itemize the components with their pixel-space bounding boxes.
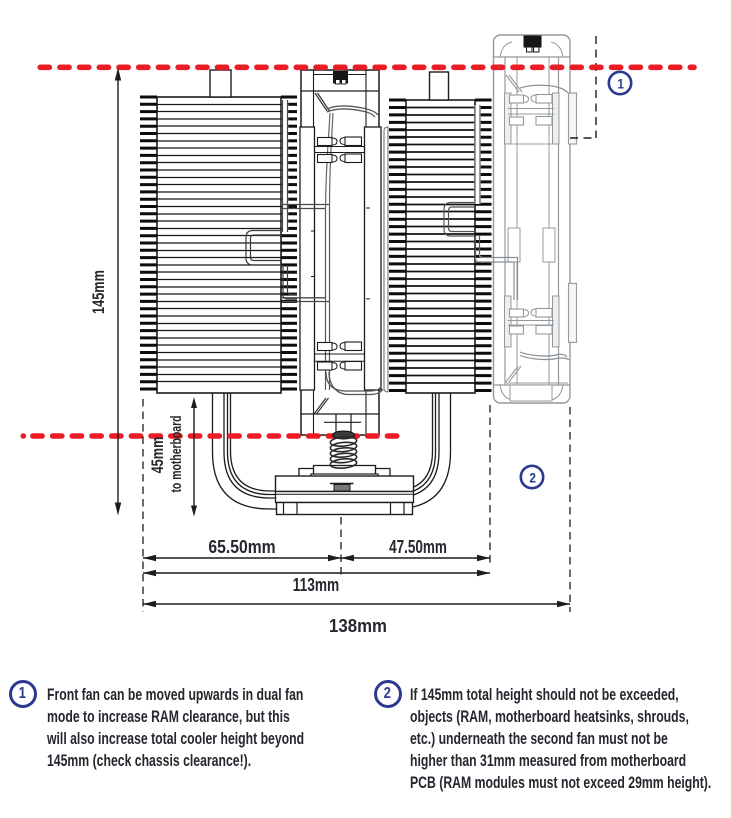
svg-text:138mm: 138mm (329, 615, 387, 636)
svg-text:65.50mm: 65.50mm (208, 536, 275, 558)
svg-text:2: 2 (529, 469, 536, 485)
svg-text:113mm: 113mm (293, 575, 339, 595)
svg-text:145mm: 145mm (89, 270, 108, 314)
svg-text:47.50mm: 47.50mm (389, 537, 447, 558)
svg-text:1: 1 (617, 75, 624, 91)
svg-text:45mm: 45mm (148, 437, 167, 474)
svg-text:to motherboard: to motherboard (168, 415, 184, 492)
